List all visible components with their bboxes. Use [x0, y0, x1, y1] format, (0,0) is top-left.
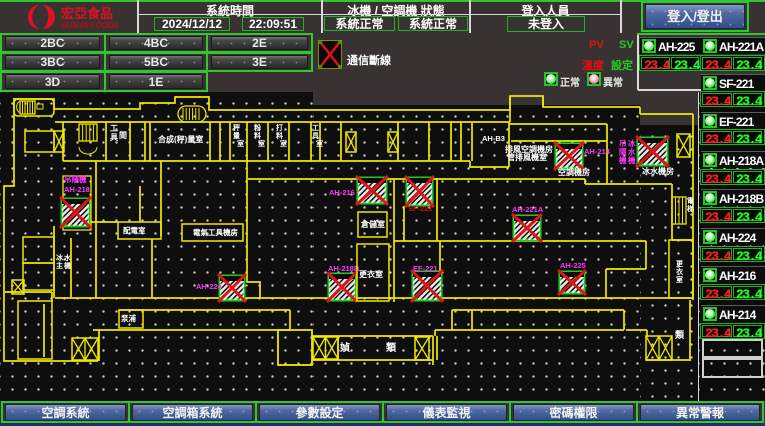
svg-text:水: 水	[64, 253, 72, 262]
svg-text:AH-214: AH-214	[584, 147, 611, 156]
svg-text:工: 工	[110, 124, 118, 133]
svg-text:AH-B3: AH-B3	[482, 134, 505, 143]
svg-text:泵浦: 泵浦	[121, 313, 136, 323]
svg-text:機: 機	[619, 155, 627, 165]
svg-text:主: 主	[56, 261, 63, 270]
svg-text:AH-225: AH-225	[560, 261, 586, 270]
svg-text:媜: 媜	[340, 341, 350, 354]
svg-text:具: 具	[110, 133, 118, 142]
svg-text:AH-218B: AH-218B	[328, 264, 360, 273]
svg-text:更衣室: 更衣室	[359, 269, 383, 279]
svg-text:AH-224: AH-224	[196, 282, 223, 291]
svg-text:合成(秤)量室: 合成(秤)量室	[157, 134, 203, 144]
svg-text:室: 室	[237, 139, 244, 148]
svg-text:粉: 粉	[254, 123, 261, 132]
svg-text:吊隱機: 吊隱機	[64, 174, 87, 184]
svg-text:倉儲室: 倉儲室	[360, 219, 385, 229]
svg-text:料: 料	[276, 131, 283, 140]
svg-text:工: 工	[312, 124, 319, 132]
svg-text:電: 電	[687, 196, 694, 205]
svg-text:AH-218: AH-218	[64, 185, 90, 194]
svg-text:冰水機房: 冰水機房	[642, 166, 674, 176]
svg-text:電氣工具機房: 電氣工具機房	[193, 227, 238, 237]
svg-text:冰: 冰	[628, 138, 636, 148]
svg-text:管排風機室: 管排風機室	[507, 152, 547, 162]
svg-text:量: 量	[233, 131, 240, 140]
svg-text:冰: 冰	[56, 253, 64, 262]
svg-text:SF-221: SF-221	[408, 204, 433, 213]
svg-text:秤: 秤	[233, 123, 240, 132]
svg-text:類: 類	[385, 341, 397, 354]
svg-text:水: 水	[628, 147, 636, 157]
svg-text:打: 打	[276, 123, 283, 132]
svg-text:AH-216: AH-216	[329, 188, 355, 197]
svg-text:機: 機	[628, 155, 636, 165]
svg-text:類: 類	[674, 329, 685, 340]
svg-text:間: 間	[119, 131, 127, 140]
svg-text:室: 室	[676, 275, 683, 284]
svg-text:室: 室	[258, 139, 265, 148]
svg-text:AH-221A: AH-221A	[512, 205, 544, 214]
svg-text:隱: 隱	[619, 147, 627, 157]
svg-text:梯: 梯	[687, 204, 694, 213]
svg-text:配電室: 配電室	[123, 225, 146, 235]
svg-text:更: 更	[676, 260, 684, 268]
svg-text:衣: 衣	[676, 267, 684, 276]
svg-text:機: 機	[64, 261, 71, 270]
svg-text:料: 料	[254, 131, 261, 140]
svg-text:室: 室	[316, 139, 323, 148]
svg-text:空調機房: 空調機房	[558, 167, 590, 177]
svg-text:具: 具	[311, 131, 319, 140]
svg-text:室: 室	[280, 139, 287, 148]
svg-text:EF-221: EF-221	[413, 264, 438, 273]
